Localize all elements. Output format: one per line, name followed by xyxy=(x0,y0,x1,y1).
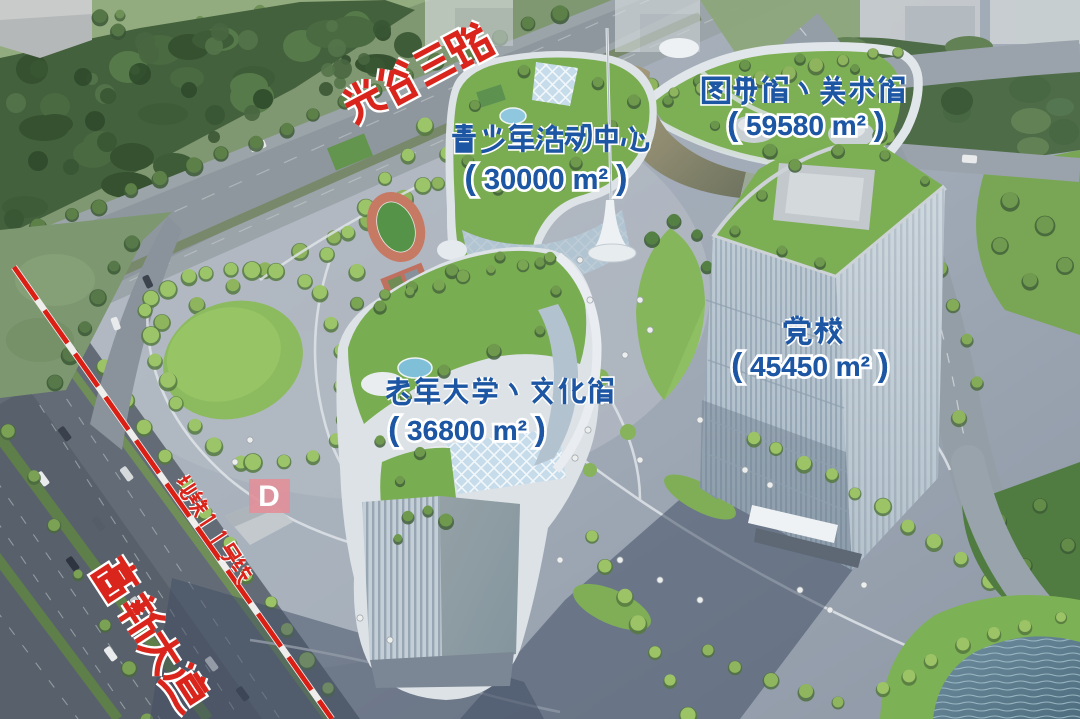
svg-text:( 45450 m² ): ( 45450 m² ) xyxy=(731,346,888,383)
svg-text:( 36800 m² ): ( 36800 m² ) xyxy=(388,410,545,447)
svg-text:( 59580 m² ): ( 59580 m² ) xyxy=(727,105,884,142)
svg-text:( 30000 m² ): ( 30000 m² ) xyxy=(465,159,628,197)
svg-text:D: D xyxy=(258,480,280,513)
